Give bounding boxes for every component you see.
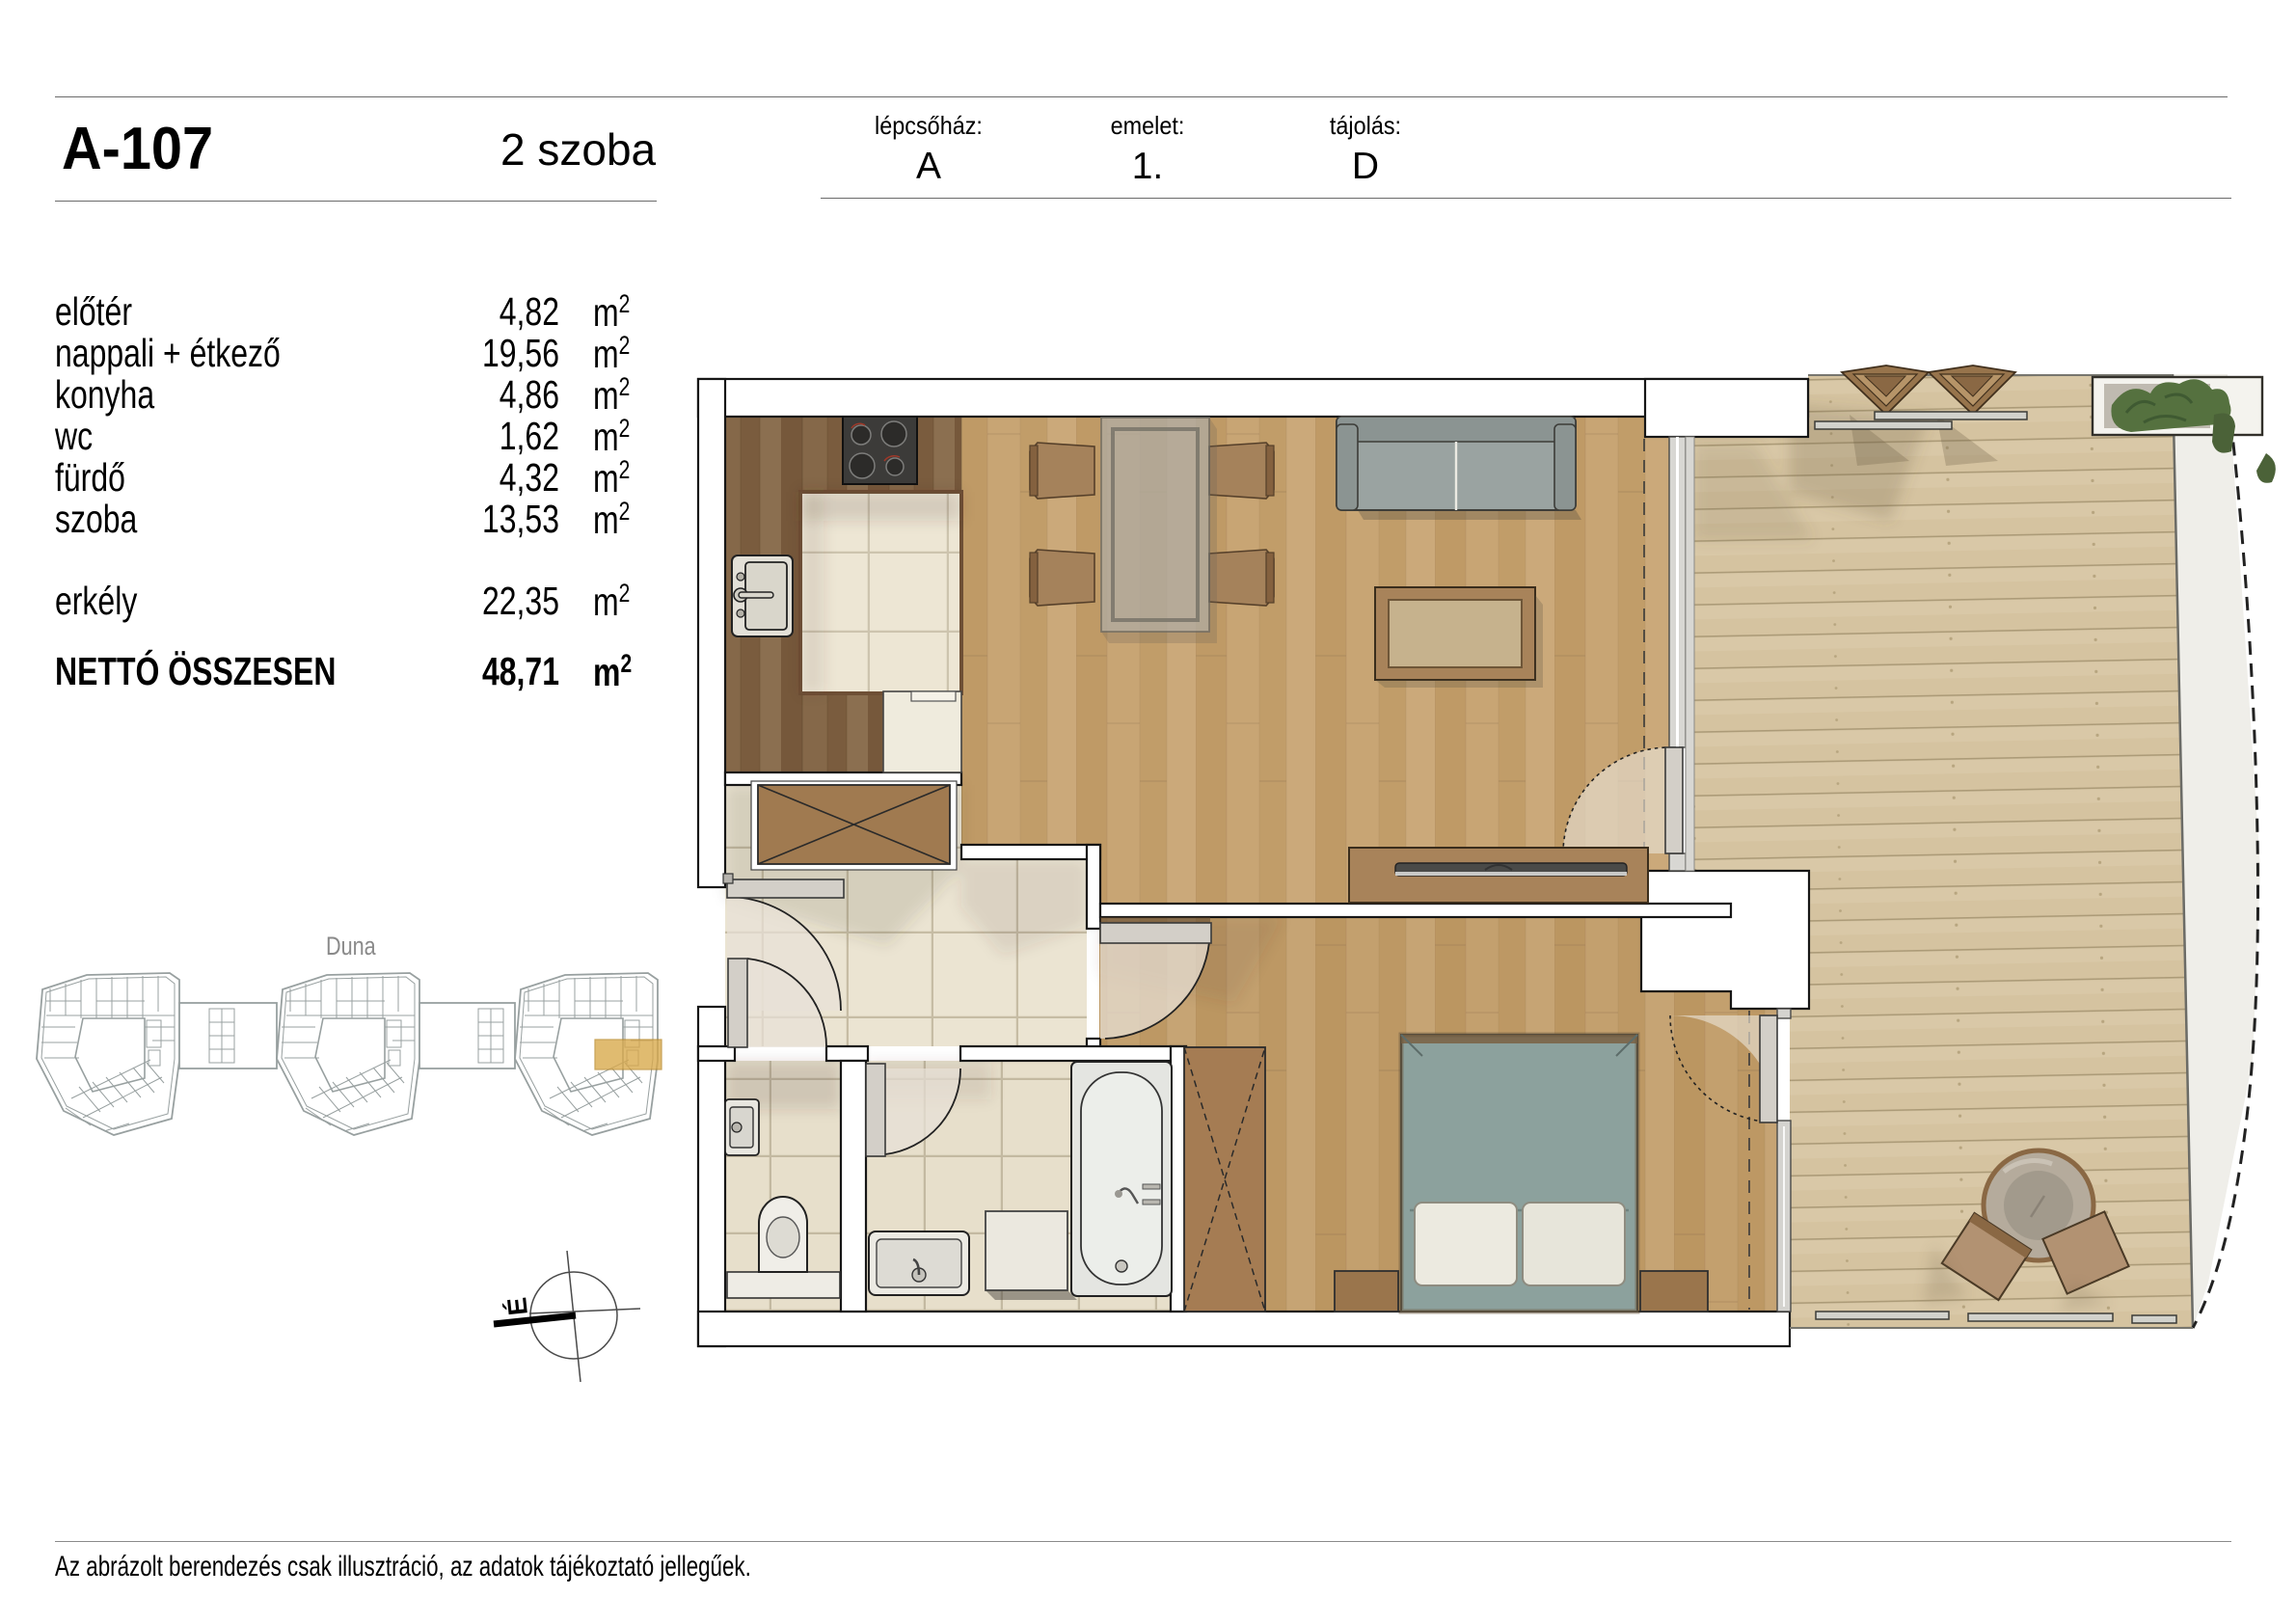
svg-text:É: É — [501, 1296, 533, 1317]
